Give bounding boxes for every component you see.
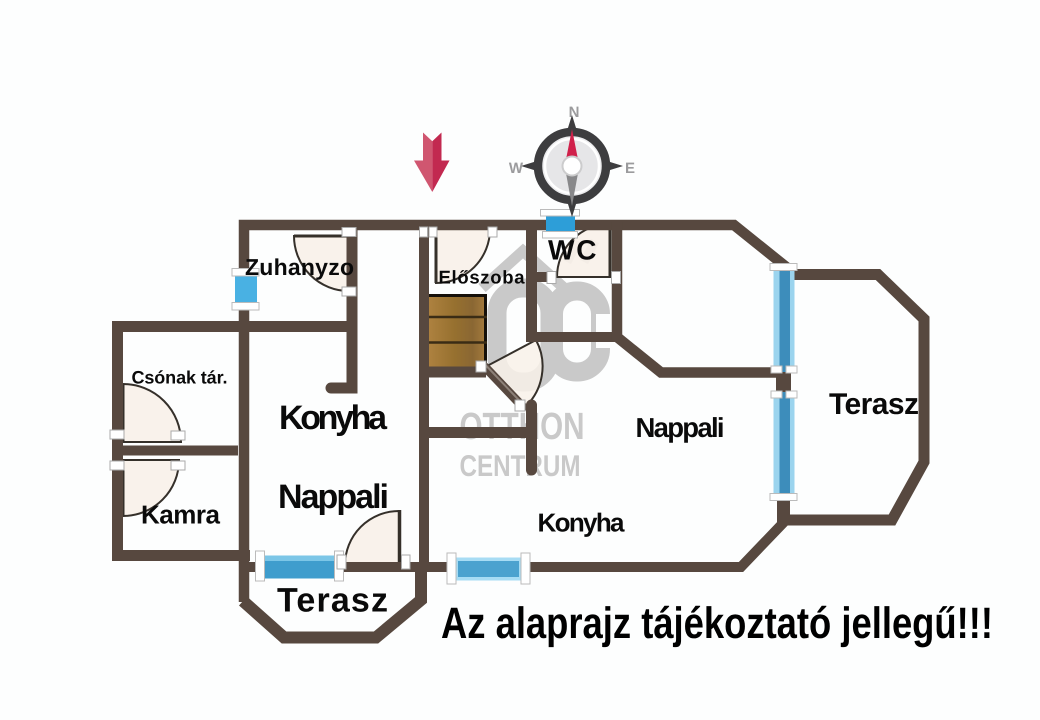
svg-text:CENTRUM: CENTRUM <box>460 450 581 483</box>
svg-text:Konyha: Konyha <box>279 399 388 437</box>
svg-text:E: E <box>625 160 635 177</box>
svg-text:Nappali: Nappali <box>278 478 389 516</box>
svg-text:Az alaprajz tájékoztató jelleg: Az alaprajz tájékoztató jellegű!!! <box>441 599 993 648</box>
svg-text:N: N <box>569 104 580 121</box>
svg-text:Nappali: Nappali <box>636 412 725 443</box>
svg-text:WC: WC <box>548 235 597 266</box>
svg-text:Terasz: Terasz <box>829 388 919 421</box>
svg-text:Csónak tár.: Csónak tár. <box>132 368 228 388</box>
svg-text:Zuhanyzo: Zuhanyzo <box>245 254 354 280</box>
svg-text:Terasz: Terasz <box>277 581 388 619</box>
svg-text:Konyha: Konyha <box>538 508 626 538</box>
svg-text:Előszoba: Előszoba <box>439 267 526 288</box>
svg-text:W: W <box>509 160 524 177</box>
svg-text:Kamra: Kamra <box>141 500 221 530</box>
